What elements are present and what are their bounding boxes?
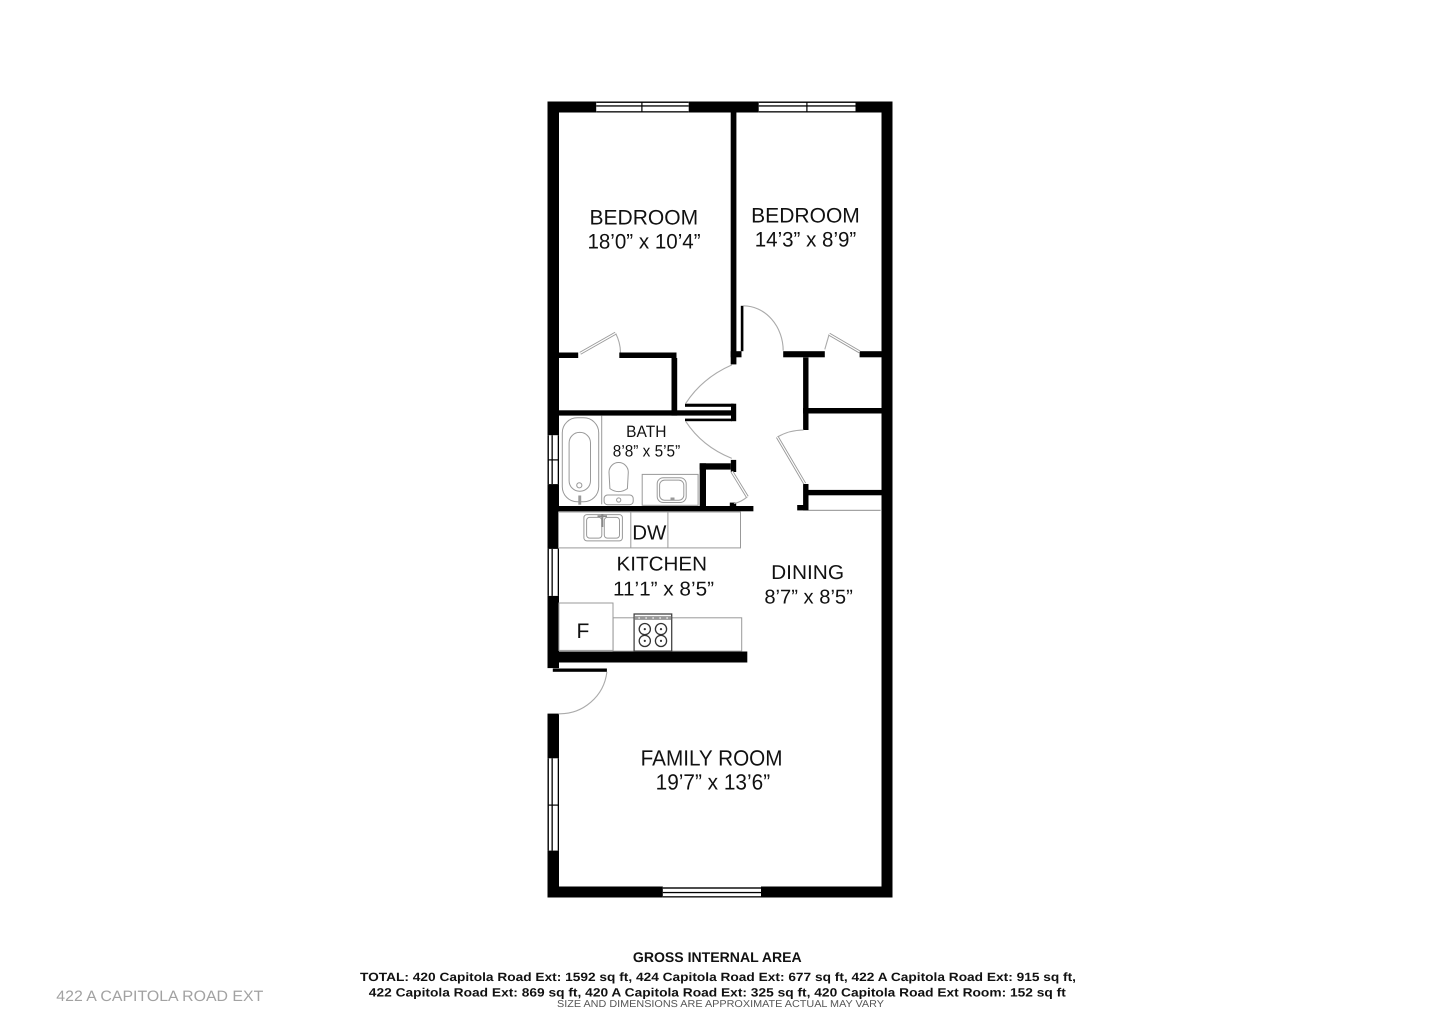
svg-text:8’8” x 5’5”: 8’8” x 5’5” — [613, 443, 680, 461]
svg-text:19’7” x 13’6”: 19’7” x 13’6” — [656, 769, 771, 794]
svg-text:BEDROOM: BEDROOM — [751, 205, 860, 228]
svg-text:FAMILY ROOM: FAMILY ROOM — [641, 746, 783, 771]
svg-text:11’1” x 8’5”: 11’1” x 8’5” — [613, 579, 714, 601]
svg-text:KITCHEN: KITCHEN — [617, 553, 708, 575]
svg-text:DINING: DINING — [771, 562, 844, 584]
svg-text:18’0” x 10’4”: 18’0” x 10’4” — [587, 231, 700, 254]
svg-text:8’7” x 8’5”: 8’7” x 8’5” — [764, 586, 853, 608]
svg-text:422 Capitola Road Ext: 869 sq: 422 Capitola Road Ext: 869 sq ft, 420 A … — [369, 985, 1066, 999]
svg-text:BATH: BATH — [626, 423, 666, 441]
svg-text:GROSS INTERNAL AREA: GROSS INTERNAL AREA — [633, 949, 802, 965]
svg-text:DW: DW — [632, 521, 667, 544]
svg-text:F: F — [576, 620, 589, 643]
svg-text:SIZE AND DIMENSIONS ARE APPROX: SIZE AND DIMENSIONS ARE APPROXIMATE ACTU… — [557, 999, 884, 1010]
svg-text:TOTAL: 420 Capitola Road Ext:: TOTAL: 420 Capitola Road Ext: 1592 sq ft… — [360, 970, 1076, 984]
svg-text:422 A CAPITOLA ROAD EXT: 422 A CAPITOLA ROAD EXT — [56, 988, 263, 1005]
svg-text:14’3” x 8’9”: 14’3” x 8’9” — [755, 229, 857, 252]
svg-text:BEDROOM: BEDROOM — [589, 206, 698, 229]
